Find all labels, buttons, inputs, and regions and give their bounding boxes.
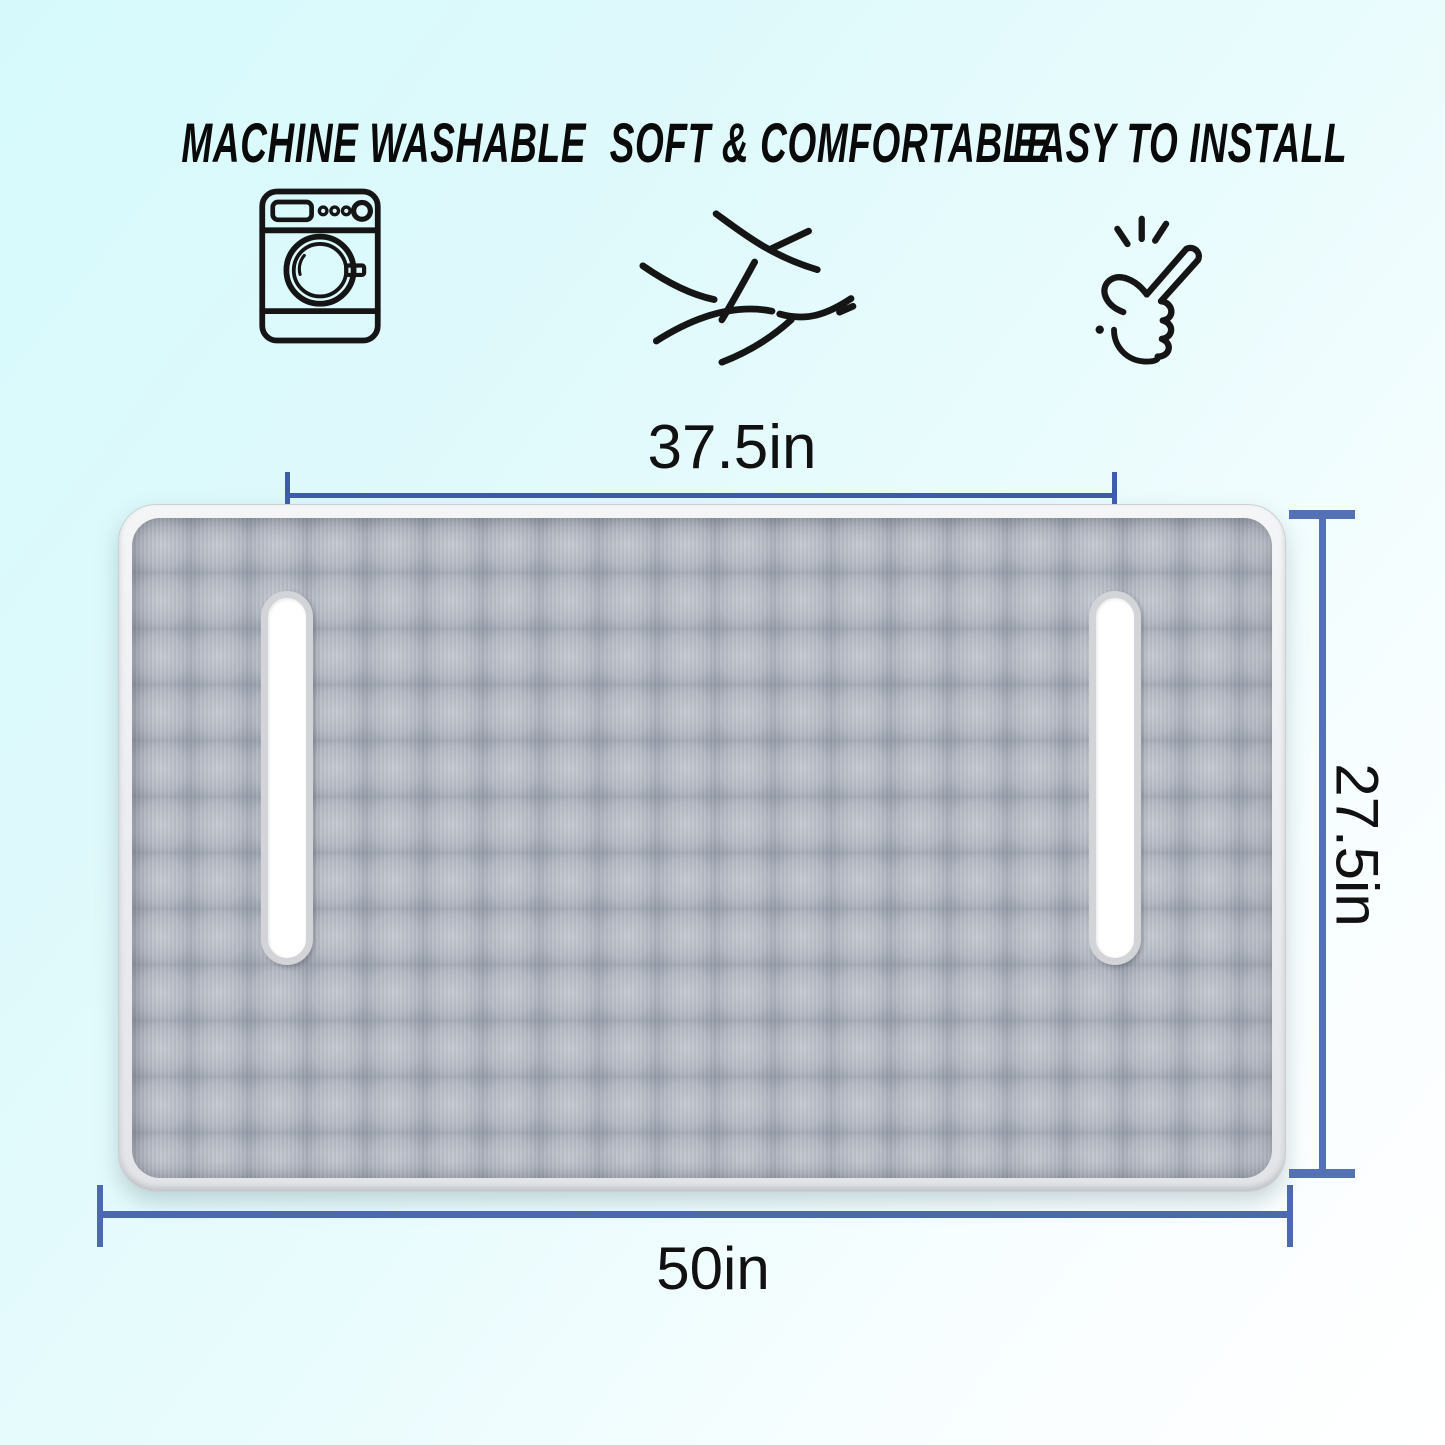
feature-easy-install: EASY TO INSTALL — [950, 114, 1320, 370]
feature-label-easy-install: EASY TO INSTALL — [1013, 114, 1257, 172]
dimension-label-inner-width: 37.5in — [532, 412, 932, 483]
mat-handle-slot-right — [1089, 591, 1141, 965]
feature-label-soft-comfortable: SOFT & COMFORTABLE — [610, 114, 881, 172]
dimension-cap-height-bottom — [1289, 1169, 1355, 1178]
dimension-line-inner-width — [288, 493, 1115, 498]
feature-soft-comfortable: SOFT & COMFORTABLE — [540, 114, 950, 368]
dimension-label-height: 27.5in — [1323, 763, 1392, 926]
product-infographic: MACHINE WASHABLE SOFT & COMFORTABLE — [0, 0, 1445, 1445]
dimension-label-outer-width: 50in — [513, 1234, 913, 1303]
dimension-tick-outer-width-left — [97, 1185, 103, 1247]
snap-finger-icon — [1049, 202, 1221, 370]
washing-machine-icon — [257, 186, 383, 346]
dimension-tick-outer-width-right — [1287, 1185, 1293, 1247]
feature-label-machine-washable: MACHINE WASHABLE — [181, 114, 458, 172]
dimension-cap-height-top — [1289, 510, 1355, 519]
fabric-weave-icon — [629, 208, 861, 368]
feature-machine-washable: MACHINE WASHABLE — [110, 114, 530, 346]
dimension-line-outer-width — [100, 1211, 1290, 1218]
mat-handle-slot-left — [261, 591, 313, 965]
